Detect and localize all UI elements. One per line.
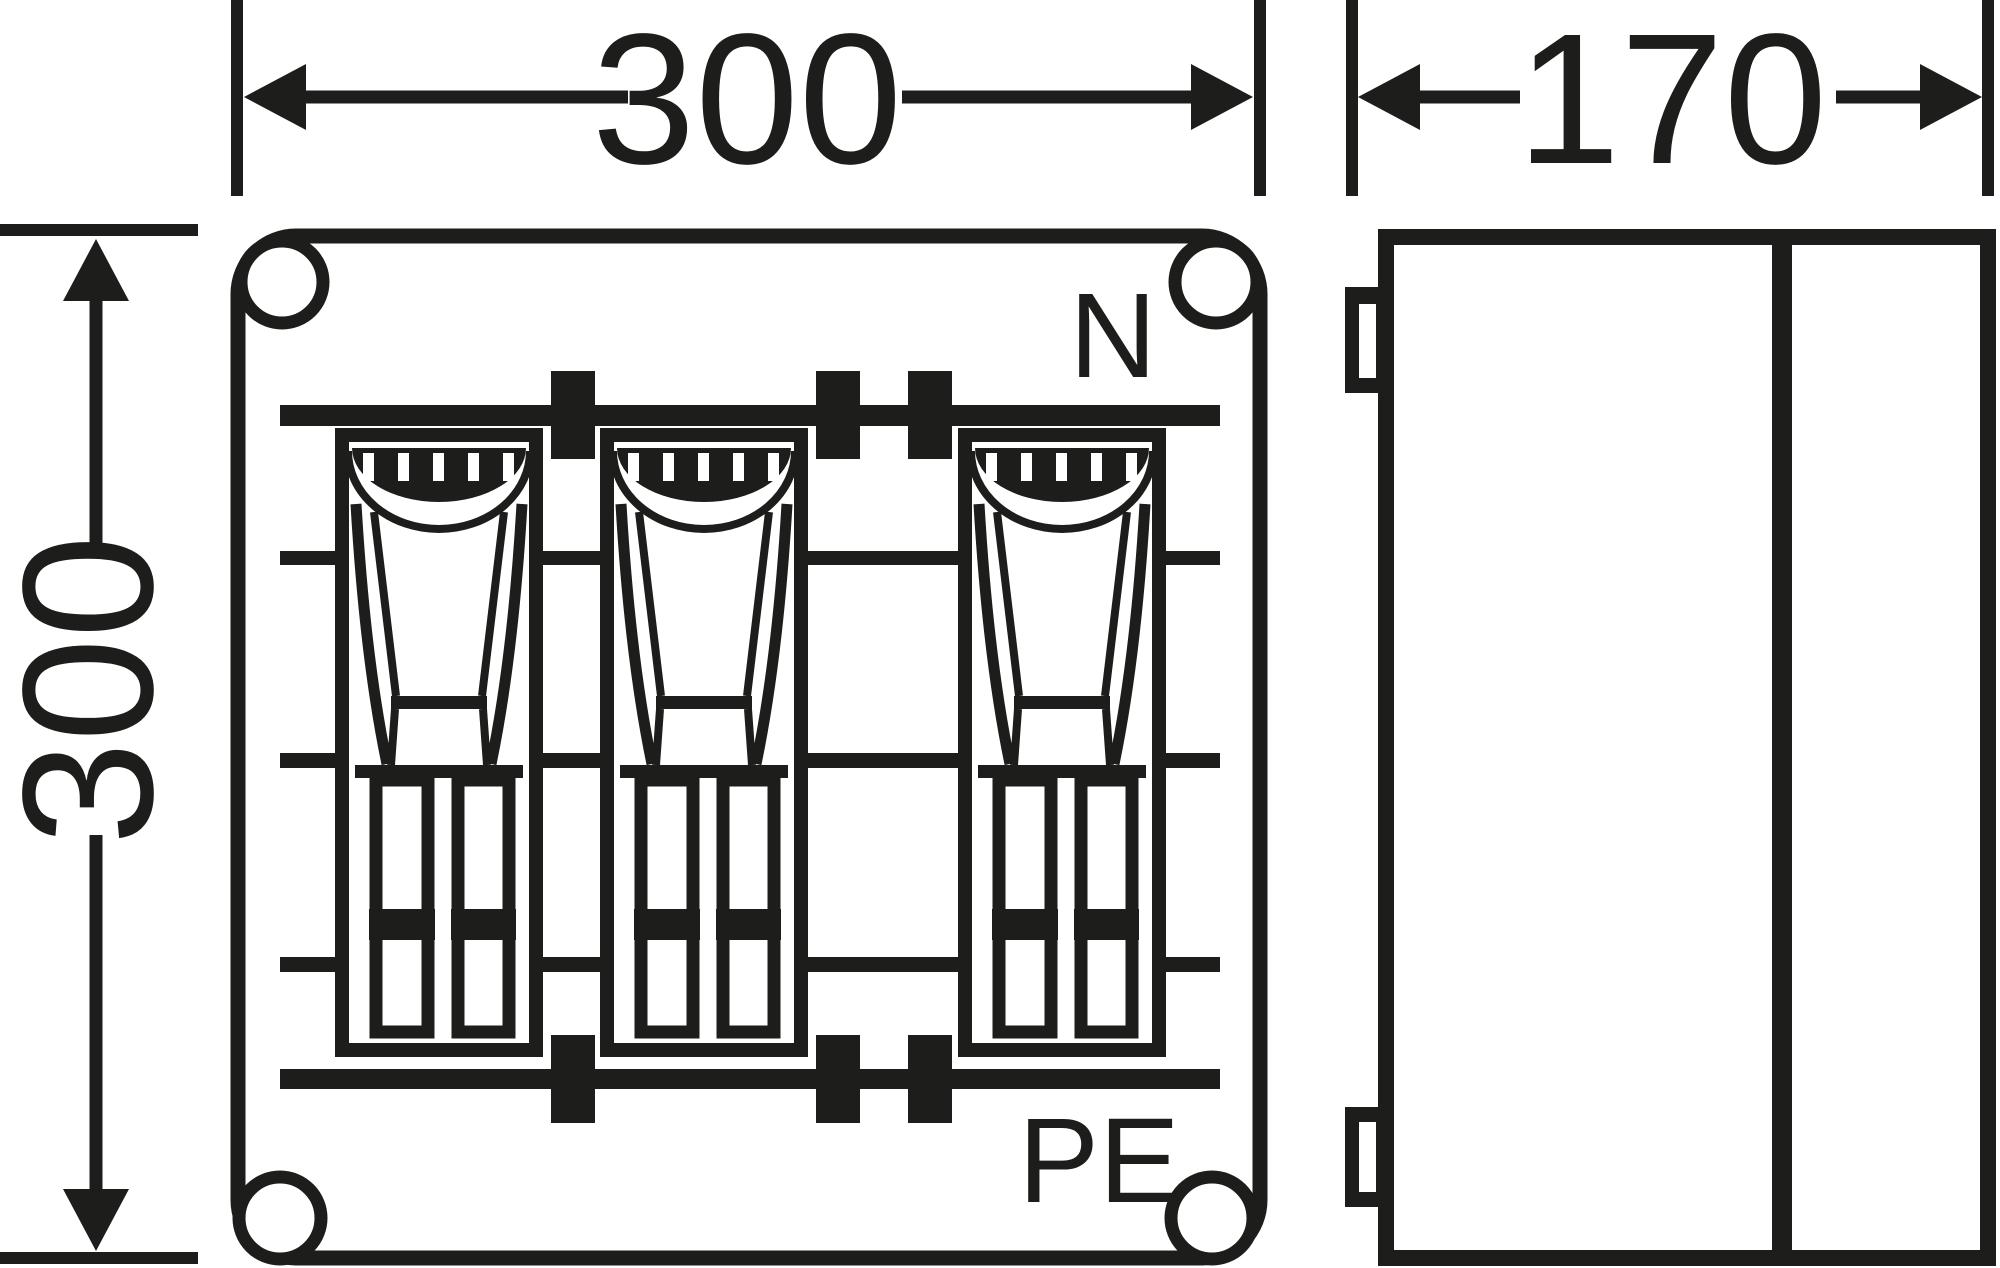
mounting-hole-top-left [241, 241, 323, 323]
mounting-hole-top-right [1175, 241, 1257, 323]
arrow-right-icon [1920, 64, 1982, 130]
dimension-height: 300 [0, 230, 198, 1258]
neutral-label: N [1069, 267, 1156, 403]
pe-label: PE [1018, 1092, 1179, 1228]
side-view [1345, 237, 1988, 1258]
side-enclosure-outline [1386, 237, 1988, 1258]
arrow-left-icon [1358, 64, 1420, 130]
busbar-clamp-pe3 [908, 1035, 952, 1123]
arrow-up-icon [63, 239, 129, 301]
busbar-clamp-n2 [816, 371, 860, 459]
pe-busbar [280, 1069, 1220, 1089]
neutral-busbar [280, 405, 1220, 426]
busbar-clamp-n1 [551, 371, 595, 459]
width-value: 300 [592, 0, 902, 203]
busbar-clamp-pe1 [551, 1035, 595, 1123]
fuse-switch-unit-2 [607, 435, 801, 1050]
enclosure-drawing: 300 170 300 [0, 0, 2000, 1268]
mounting-hole-bottom-left [239, 1177, 321, 1259]
depth-value: 170 [1517, 0, 1827, 203]
height-value: 300 [0, 535, 192, 845]
arrow-down-icon [63, 1189, 129, 1251]
busbar-clamp-n3 [908, 371, 952, 459]
busbar-clamp-pe2 [816, 1035, 860, 1123]
technical-drawing-canvas: 300 170 300 [0, 0, 2000, 1268]
dimension-depth: 170 [1352, 0, 1988, 203]
fuse-switch-unit-3 [965, 435, 1159, 1050]
fuse-switch-unit-1 [342, 435, 536, 1050]
arrow-right-icon [1191, 64, 1253, 130]
mounting-hole-bottom-right [1171, 1177, 1253, 1259]
dimension-width: 300 [237, 0, 1260, 203]
front-view: N PE [238, 236, 1260, 1259]
arrow-left-icon [244, 64, 306, 130]
